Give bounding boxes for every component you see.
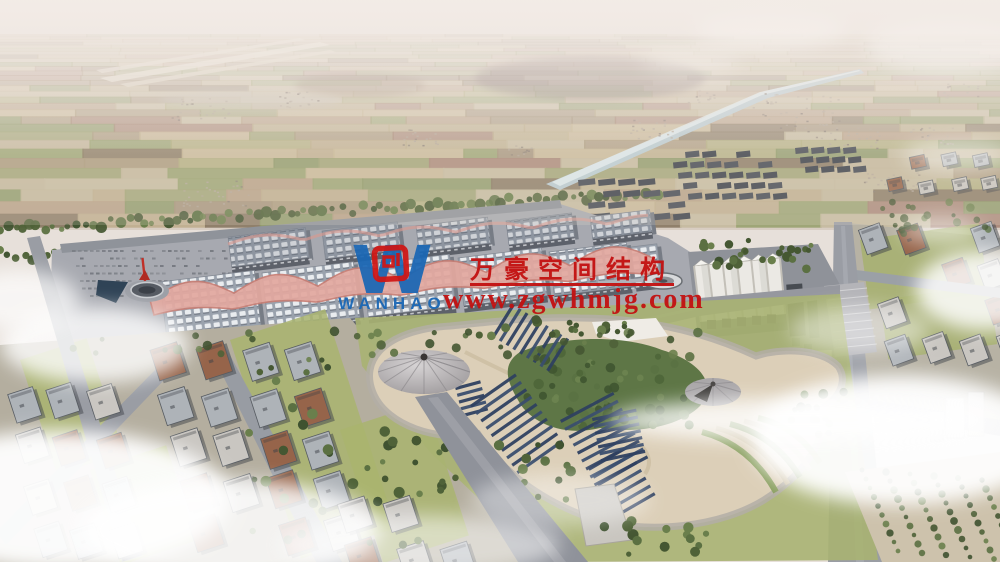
aerial-scene	[0, 0, 1000, 562]
aerial-rendering-image: W WANHAO 万豪空间结构 www.zgwhmjg.com	[0, 0, 1000, 562]
oval-dome-cap	[659, 279, 668, 283]
stadium-field	[139, 286, 156, 294]
horizon-haze	[0, 0, 1000, 155]
big-cone-tent	[378, 350, 470, 394]
